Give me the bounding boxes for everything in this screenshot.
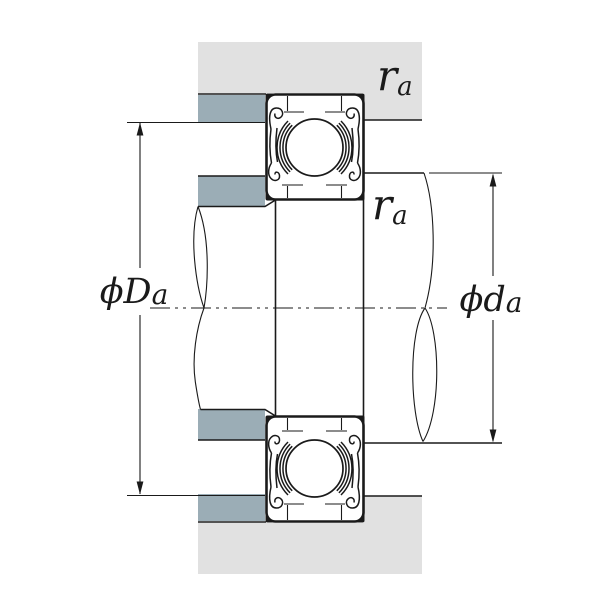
bearing-top	[266, 94, 365, 201]
diagram-canvas: ra ra ϕDa ϕda	[0, 0, 600, 600]
arrowhead-up-icon	[137, 123, 144, 136]
shaft-shoulder-top	[198, 176, 265, 207]
label-ra-shaft: ra	[372, 180, 408, 231]
bearing-bottom	[266, 416, 365, 523]
label-phi-Da: ϕDa	[100, 272, 169, 312]
label-phi-da: ϕda	[460, 280, 523, 320]
shaft-break-right	[413, 173, 437, 442]
bearing-mounting-diagram: ra ra ϕDa ϕda	[0, 0, 600, 600]
housing-shoulder-top	[198, 95, 265, 122]
shaft-shoulder-bottom	[198, 409, 265, 440]
arrowhead-down-icon	[490, 430, 497, 443]
housing-shoulder-bottom	[198, 494, 265, 521]
arrowhead-up-icon	[490, 174, 497, 187]
arrowhead-down-icon	[137, 482, 144, 495]
